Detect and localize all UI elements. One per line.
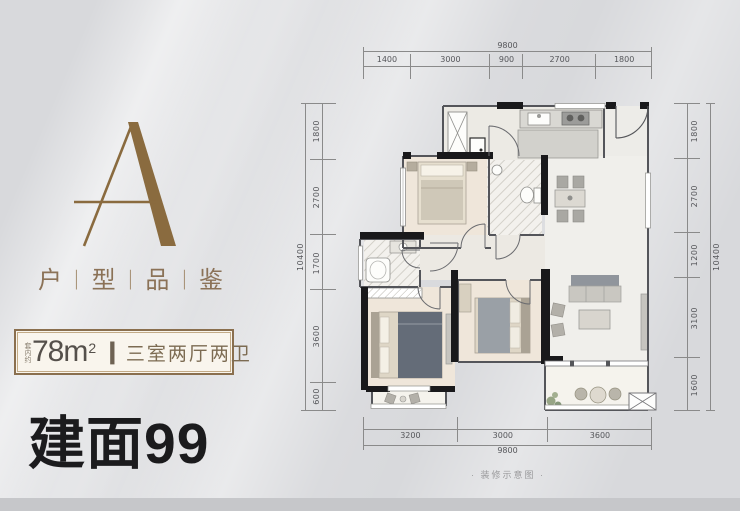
series-char: 品 (145, 260, 169, 295)
window-kitchen (555, 104, 605, 109)
dim-left-overall: 10400 (296, 243, 305, 271)
series-divider: | (128, 266, 132, 290)
terrace-plant (552, 392, 558, 398)
bedroom3-headboard (521, 298, 530, 353)
kitchen-faucet (537, 114, 541, 118)
series-title: 户 | 型 | 品 | 鉴 (38, 260, 223, 295)
window-living-balcony (545, 361, 648, 366)
dim-bottom-segments: 3200 3000 3600 (363, 429, 652, 442)
terrace-stool (609, 388, 621, 400)
dim-left-overall-line (305, 103, 306, 411)
master-pillow (380, 347, 389, 373)
series-divider: | (182, 266, 186, 290)
dim-segment: 1700 (310, 235, 322, 290)
dim-top: 9800 1400 3000 900 2700 1800 (363, 41, 652, 67)
wall-black (606, 102, 616, 109)
sofa-seat (569, 286, 621, 302)
bedroom3-wardrobe (459, 284, 471, 312)
dim-segment: 3000 (411, 54, 490, 66)
dim-top-overall: 9800 (497, 41, 517, 50)
dining-chair (573, 176, 584, 188)
dining-chair (573, 210, 584, 222)
wall-black (428, 386, 455, 392)
dim-right: 1800 2700 1200 3100 1600 10400 (687, 103, 721, 411)
headline: 建面99 (28, 398, 209, 480)
dim-segment: 2700 (310, 160, 322, 235)
dim-segment: 3600 (548, 430, 652, 442)
stove-burner (567, 115, 574, 122)
coffee-table (579, 310, 610, 329)
kitchen-stove (562, 112, 589, 125)
dim-bottom-overall-line (363, 445, 652, 446)
wall-black (361, 287, 368, 390)
series-char: 鉴 (199, 260, 223, 295)
room-hallway (403, 235, 545, 280)
bedroom2-pillows (421, 165, 463, 176)
logo-letter-a (72, 118, 197, 253)
wall-black (541, 155, 548, 215)
dim-right-segments: 1800 2700 1200 3100 1600 (687, 103, 700, 411)
dim-segment: 1800 (688, 103, 700, 159)
dim-segment: 1200 (688, 233, 700, 278)
layout-text: 三室两厅两卫 (126, 339, 252, 366)
stove-burner (578, 115, 585, 122)
dim-segment: 1800 (310, 103, 322, 160)
bath1-toilet (521, 187, 534, 203)
series-divider: | (75, 266, 79, 290)
window-dining (646, 173, 651, 228)
armchair (551, 323, 565, 337)
dim-segment: 3600 (310, 290, 322, 382)
balcony-rail-master (371, 404, 446, 409)
bath1-toilet-tank (534, 188, 541, 203)
bath1-basin (492, 165, 502, 175)
balcony-table (400, 396, 406, 402)
dim-segment: 3000 (458, 430, 548, 442)
dim-top-overall-line (363, 51, 652, 52)
window-post (606, 361, 610, 367)
series-char: 户 (38, 260, 62, 295)
floor-plan (358, 98, 660, 416)
wall-black (360, 232, 424, 239)
wall-black (497, 102, 523, 109)
bedroom3-pillow (510, 302, 520, 323)
logo-a-right-stroke (128, 122, 176, 246)
kitchen-island (518, 130, 598, 158)
dining-chair (557, 176, 568, 188)
wall-black (403, 152, 411, 159)
dining-centerpiece (568, 196, 573, 201)
dining-chair (557, 210, 568, 222)
window-master-bottom (388, 386, 430, 391)
terrace-stool (575, 388, 587, 400)
dim-left-segments: 1800 2700 1700 3600 600 (310, 103, 323, 411)
wall-black (541, 269, 550, 364)
dim-segment: 600 (310, 383, 322, 411)
plan-caption: · 装修示意图 · (363, 468, 653, 481)
window-post (570, 361, 574, 367)
bedroom3-pillow (510, 327, 520, 348)
window-bath2 (359, 246, 363, 280)
bottom-strip (0, 498, 740, 511)
dim-segment: 3200 (363, 430, 458, 442)
tv-cabinet-living (641, 294, 648, 350)
dim-segment: 2700 (523, 54, 596, 66)
terrace-table (590, 387, 606, 403)
bedroom2-nightstand (407, 162, 417, 171)
master-headboard (371, 312, 379, 378)
logo-a-left-stroke (84, 124, 132, 246)
dim-left: 10400 1800 2700 1700 3600 600 (296, 103, 323, 411)
area-sup: 2 (88, 340, 95, 356)
dim-segment: 3100 (688, 278, 700, 359)
area-prefix: 套内约 (24, 342, 31, 363)
dim-bottom: 3200 3000 3600 9800 (363, 429, 652, 456)
fridge (470, 138, 485, 154)
dim-segment: 1800 (596, 54, 652, 66)
wall-black (451, 270, 458, 362)
fridge-dot (480, 149, 483, 152)
sofa-back (571, 275, 619, 286)
dim-segment: 900 (490, 54, 523, 66)
wall-black (437, 152, 493, 159)
wall-black (366, 386, 390, 392)
area-divider: | (108, 338, 117, 366)
bedroom2-blanket (421, 180, 463, 220)
bedroom2-nightstand (467, 162, 477, 171)
dim-top-segments: 1400 3000 900 2700 1800 (363, 54, 652, 67)
poster: 户 | 型 | 品 | 鉴 套内约 78m2 | 三室两厅两卫 建面99 (0, 0, 740, 511)
master-blanket (398, 312, 442, 378)
master-bay-window-hatch (366, 288, 422, 298)
area-badge: 套内约 78m2 | 三室两厅两卫 (14, 329, 234, 375)
balcony-chair (409, 393, 420, 404)
dim-segment: 2700 (688, 159, 700, 232)
bedroom3-blanket (478, 298, 510, 353)
dim-segment: 1600 (688, 358, 700, 411)
armchair (551, 303, 565, 317)
area-value: 78m2 (32, 335, 95, 369)
series-char: 型 (92, 260, 116, 295)
dim-segment: 1400 (363, 54, 411, 66)
dim-right-overall: 10400 (712, 243, 721, 271)
master-pillow (380, 317, 389, 343)
dim-bottom-overall: 9800 (497, 446, 517, 455)
